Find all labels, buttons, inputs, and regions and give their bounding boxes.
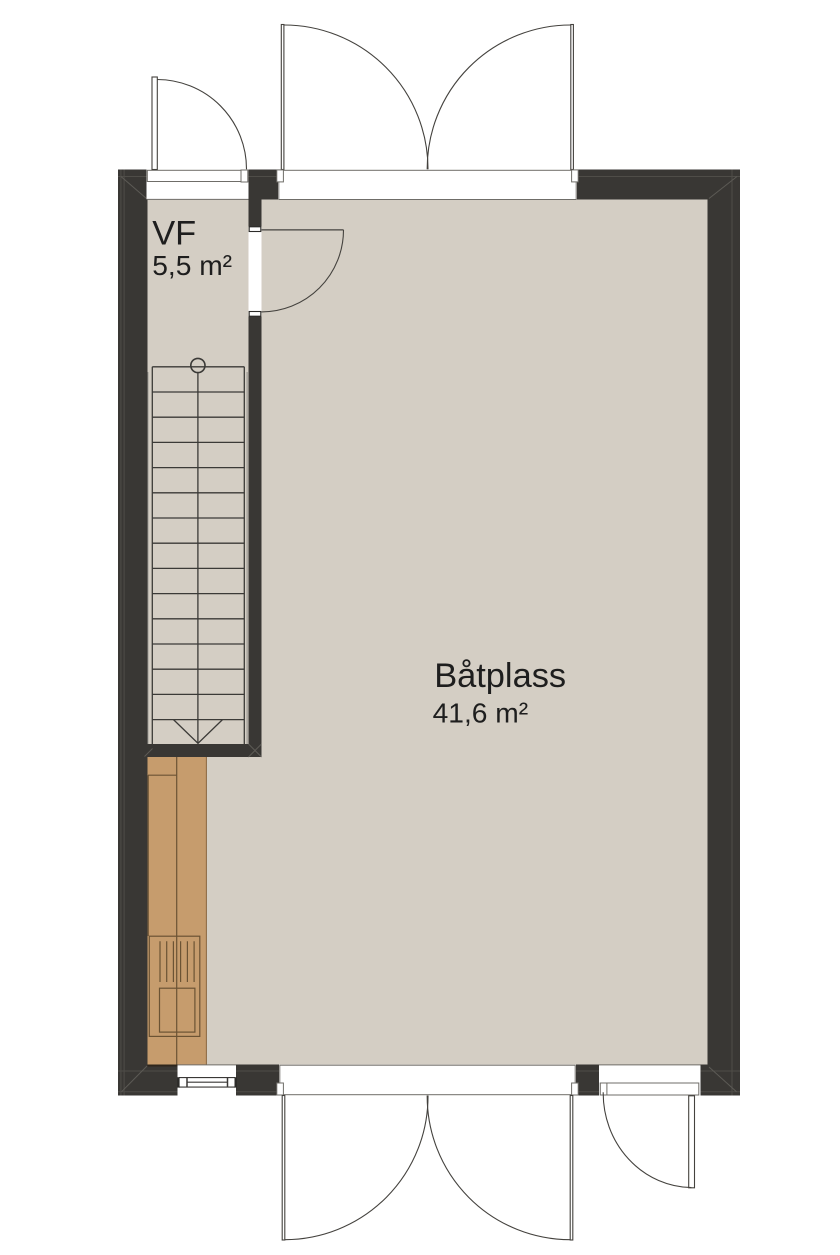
svg-text:VF: VF xyxy=(152,214,196,252)
svg-text:41,6 m²: 41,6 m² xyxy=(433,697,529,729)
svg-text:Båtplass: Båtplass xyxy=(434,657,566,695)
svg-text:5,5 m²: 5,5 m² xyxy=(152,249,232,281)
